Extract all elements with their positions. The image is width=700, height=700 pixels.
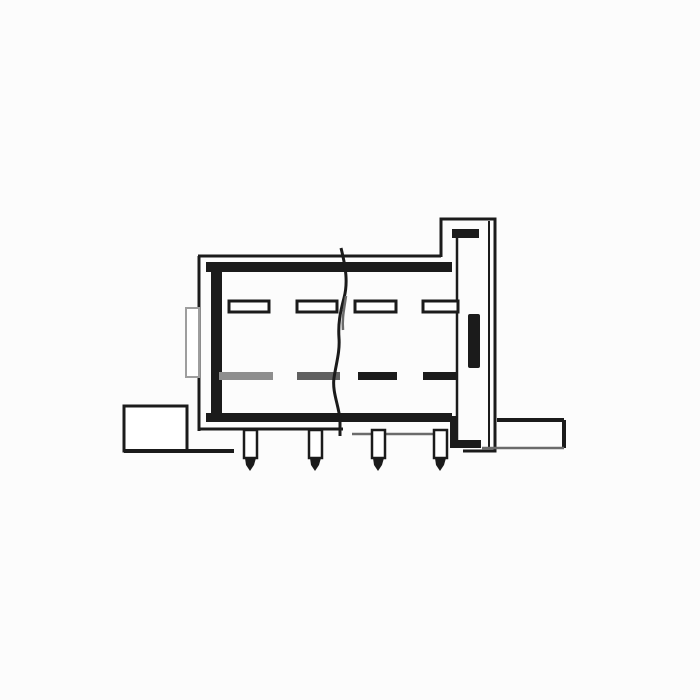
pin-body xyxy=(309,430,322,458)
connector-drawing-svg xyxy=(0,0,700,700)
contact-bar xyxy=(358,372,397,380)
polarization-rib xyxy=(186,308,199,377)
flange-lip xyxy=(452,229,479,238)
contact-slot xyxy=(423,301,458,312)
contact-slot xyxy=(355,301,396,312)
inner-top-wall xyxy=(206,262,452,272)
pin-body xyxy=(244,430,257,458)
bottom-step-horizontal xyxy=(450,440,481,448)
inner-left-wall xyxy=(211,262,222,421)
pin-body xyxy=(434,430,447,458)
inner-bottom-wall xyxy=(206,413,452,422)
paper-background xyxy=(0,0,700,700)
contact-bar xyxy=(219,372,273,380)
keying-slot-bar xyxy=(468,314,480,368)
standoff-block xyxy=(124,406,187,451)
contact-slot xyxy=(229,301,269,312)
contact-slot xyxy=(297,301,337,312)
contact-bar xyxy=(423,372,458,380)
drawing-canvas xyxy=(0,0,700,700)
pin-body xyxy=(372,430,385,458)
